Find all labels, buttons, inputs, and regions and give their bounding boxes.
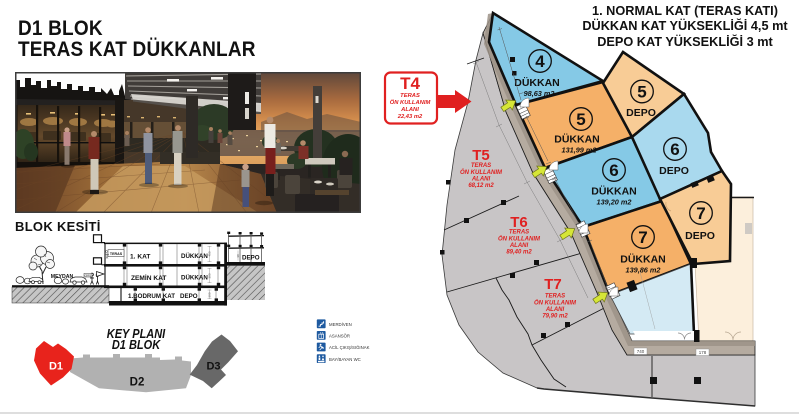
- svg-text:ZEMİN KAT: ZEMİN KAT: [131, 274, 166, 282]
- svg-text:MEYDAN: MEYDAN: [51, 274, 74, 280]
- svg-text:DEPO: DEPO: [242, 255, 260, 262]
- svg-text:DEPO: DEPO: [626, 107, 656, 119]
- svg-text:ASANSÖR: ASANSÖR: [329, 334, 350, 339]
- svg-text:139,20 m2: 139,20 m2: [597, 198, 632, 207]
- svg-text:DÜKKAN: DÜKKAN: [554, 133, 600, 146]
- svg-text:1. KAT: 1. KAT: [130, 254, 150, 261]
- svg-text:6: 6: [609, 161, 618, 180]
- svg-text:ALANI: ALANI: [471, 177, 491, 183]
- svg-text:131,99 m2: 131,99 m2: [562, 146, 597, 155]
- svg-text:89,40 m2: 89,40 m2: [506, 250, 532, 256]
- svg-text:D3: D3: [206, 361, 220, 373]
- svg-text:ALANI: ALANI: [400, 107, 419, 113]
- svg-text:ÖN KULLANIM: ÖN KULLANIM: [460, 169, 503, 176]
- svg-text:GİRİŞ: GİRİŞ: [84, 272, 91, 277]
- svg-text:178: 178: [699, 350, 707, 355]
- svg-text:300: 300: [208, 273, 212, 278]
- svg-text:DÜKKAN: DÜKKAN: [181, 274, 208, 281]
- svg-text:22,43 m2: 22,43 m2: [397, 114, 423, 120]
- svg-text:5: 5: [637, 83, 646, 102]
- svg-text:TERAS: TERAS: [400, 93, 420, 99]
- svg-text:ÖN KULLANIM: ÖN KULLANIM: [534, 300, 577, 307]
- svg-text:MERDİVEN: MERDİVEN: [329, 322, 352, 327]
- svg-text:T6: T6: [510, 214, 528, 231]
- svg-text:300: 300: [208, 292, 212, 297]
- svg-text:DEPO: DEPO: [685, 230, 715, 242]
- svg-text:7: 7: [696, 204, 705, 223]
- svg-text:D2: D2: [130, 377, 145, 389]
- svg-text:BAY/BAYAN WC: BAY/BAYAN WC: [329, 357, 361, 362]
- svg-text:D1: D1: [49, 361, 63, 373]
- svg-text:5: 5: [576, 110, 585, 129]
- svg-text:T7: T7: [544, 276, 562, 293]
- svg-text:740: 740: [637, 349, 645, 354]
- svg-text:ÖN KULLANIM: ÖN KULLANIM: [498, 236, 541, 243]
- svg-text:ÖN KULLANIM: ÖN KULLANIM: [390, 99, 431, 106]
- svg-text:98,63 m2: 98,63 m2: [524, 89, 555, 98]
- svg-text:DEPO: DEPO: [659, 165, 689, 177]
- svg-text:DÜKKAN: DÜKKAN: [620, 253, 666, 266]
- svg-text:ALANI: ALANI: [545, 307, 565, 313]
- svg-text:DÜKKAN: DÜKKAN: [591, 185, 637, 198]
- svg-text:TERAS: TERAS: [110, 252, 123, 256]
- svg-text:6: 6: [670, 140, 679, 159]
- svg-text:T4: T4: [400, 74, 420, 93]
- svg-text:30: 30: [236, 254, 240, 258]
- svg-text:68,12 m2: 68,12 m2: [468, 183, 494, 189]
- svg-text:T5: T5: [472, 147, 490, 164]
- svg-text:TERAS: TERAS: [509, 230, 529, 236]
- svg-text:7: 7: [638, 228, 647, 247]
- svg-text:139,86 m2: 139,86 m2: [626, 266, 661, 275]
- svg-text:TERAS: TERAS: [471, 163, 491, 169]
- svg-text:79,90 m2: 79,90 m2: [542, 314, 568, 320]
- svg-text:ALANI: ALANI: [509, 243, 529, 249]
- svg-text:ACİL ÇIKIŞ/SIĞINAK: ACİL ÇIKIŞ/SIĞINAK: [329, 345, 370, 350]
- svg-text:DEPO: DEPO: [180, 293, 198, 300]
- svg-text:4: 4: [535, 52, 545, 71]
- svg-text:450: 450: [208, 251, 212, 256]
- svg-text:DÜKKAN: DÜKKAN: [181, 253, 208, 260]
- svg-text:TERAS: TERAS: [545, 294, 565, 300]
- svg-text:DÜKKAN: DÜKKAN: [514, 76, 560, 89]
- svg-text:1.BODRUM KAT: 1.BODRUM KAT: [128, 293, 175, 300]
